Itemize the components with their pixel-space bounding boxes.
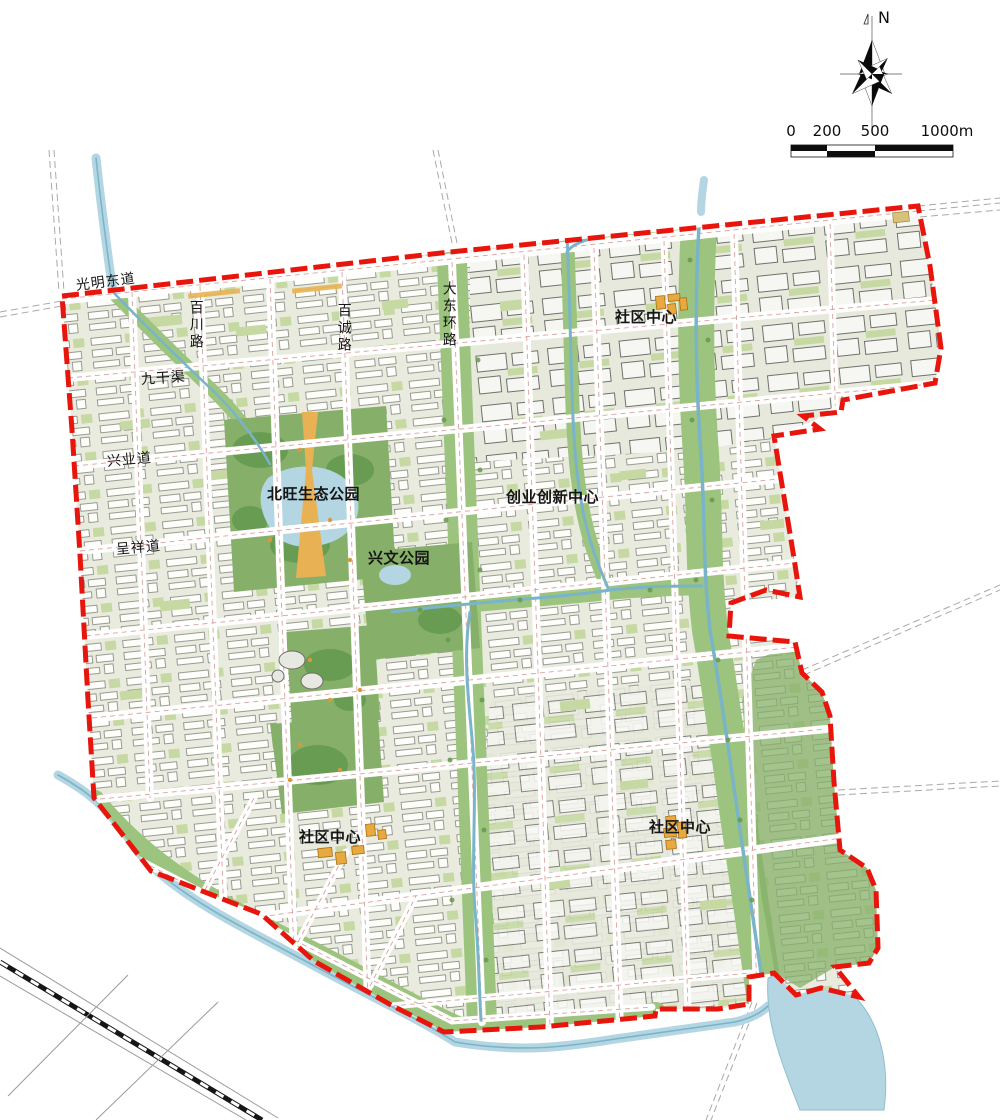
label-community-center-southwest: 社区中心 <box>299 830 361 846</box>
label-road-baichuan: 百川路 <box>188 300 203 351</box>
label-beiwang-eco-park: 北旺生态公园 <box>267 487 360 503</box>
scale-tick-0: 0 <box>786 122 796 140</box>
master-plan-map: 光明东道 百川路 百诚路 九干渠 兴业道 呈祥道 大东环路 北旺生态公园 兴文公… <box>0 0 1000 1120</box>
scale-bar <box>791 145 953 157</box>
scale-tick-500: 500 <box>861 122 890 140</box>
label-road-baicheng: 百诚路 <box>336 303 351 354</box>
label-jiugan-canal: 九干渠 <box>140 370 186 388</box>
label-community-center-north: 社区中心 <box>615 310 677 326</box>
site-plan-canvas <box>0 0 1000 1120</box>
label-road-dadong-ring: 大东环路 <box>441 281 456 349</box>
label-community-center-southeast: 社区中心 <box>649 820 711 836</box>
label-innovation-center: 创业创新中心 <box>506 490 599 506</box>
compass-rose <box>840 14 902 128</box>
pond <box>768 972 886 1110</box>
railway <box>0 948 278 1120</box>
scale-tick-1000: 1000m <box>921 122 974 140</box>
north-label: N <box>878 8 890 27</box>
label-xingwen-park: 兴文公园 <box>368 551 430 567</box>
scale-tick-200: 200 <box>813 122 842 140</box>
